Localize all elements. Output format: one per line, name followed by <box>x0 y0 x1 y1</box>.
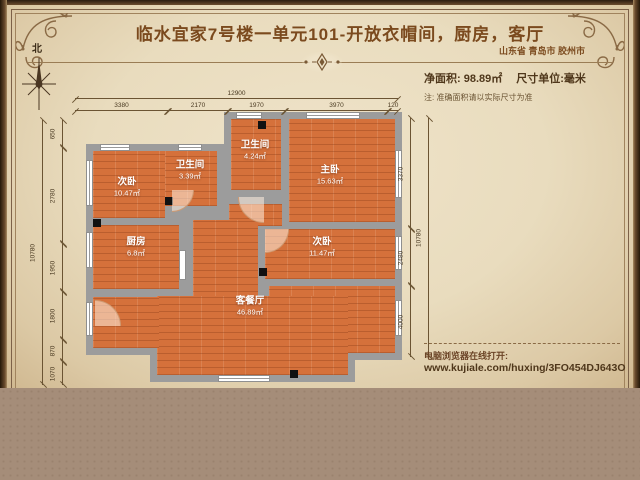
window-icon <box>218 375 270 382</box>
dim-value: 2480 <box>398 250 405 264</box>
dim-value: 870 <box>50 346 57 357</box>
compass-icon <box>20 56 58 112</box>
dim-right-seg: 3370 <box>410 118 411 229</box>
accuracy-note: 注: 准确面积请以实际尺寸为准 <box>424 92 532 103</box>
dim-value: 1950 <box>50 261 57 275</box>
dim-top-seg: 1970 <box>228 110 285 111</box>
dim-value: 2170 <box>191 102 205 109</box>
north-label: 北 <box>32 40 42 55</box>
column-marker <box>290 370 298 378</box>
dim-value: 120 <box>388 102 399 109</box>
dim-value: 1970 <box>249 102 263 109</box>
dim-left-seg: 870 <box>62 340 63 362</box>
dim-right-seg: 4000 <box>410 286 411 357</box>
dim-value: 650 <box>50 129 57 140</box>
dim-right-total: 10780 <box>428 118 429 357</box>
footer-divider <box>424 343 620 344</box>
dim-left-seg: 1950 <box>62 244 63 292</box>
paper-edge-top <box>0 0 640 5</box>
dim-left-seg: 2780 <box>62 148 63 244</box>
net-area-value: 净面积: 98.89㎡ <box>424 73 502 85</box>
dim-value: 3970 <box>329 102 343 109</box>
column-marker <box>258 121 266 129</box>
dim-left-total: 10780 <box>42 120 43 385</box>
room-name: 主卧 <box>317 164 343 176</box>
room-area: 3.39㎡ <box>176 171 205 180</box>
location-label: 山东省 青岛市 胶州市 <box>499 44 585 57</box>
room-name: 卫生间 <box>241 139 270 151</box>
room-name: 次卧 <box>114 176 140 188</box>
room-name: 客餐厅 <box>236 295 265 307</box>
dim-top-total: 12900 <box>75 98 398 99</box>
room-label-kitchen: 厨房 6.8㎡ <box>126 236 145 257</box>
dim-value: 10780 <box>416 228 423 246</box>
net-area-label: 净面积: 98.89㎡尺寸单位:毫米 <box>424 70 586 86</box>
room-name: 厨房 <box>126 236 145 248</box>
dim-top-seg: 120 <box>388 110 398 111</box>
dim-value: 1070 <box>50 366 57 380</box>
window-icon <box>86 232 93 268</box>
room-area: 46.89㎡ <box>236 307 265 316</box>
dim-left-seg: 1070 <box>62 362 63 385</box>
room-label-bath-small: 卫生间 3.39㎡ <box>176 159 205 180</box>
column-marker <box>259 268 267 276</box>
dim-top-seg: 3970 <box>285 110 388 111</box>
paper-edge-left <box>0 0 7 388</box>
dim-value: 12900 <box>227 90 245 97</box>
room-label-bath-main: 卫生间 4.24㎡ <box>241 139 270 160</box>
diamond-ornament-icon <box>302 53 342 71</box>
room-label-bedroom-left: 次卧 10.47㎡ <box>114 176 140 197</box>
room-area: 10.47㎡ <box>114 188 140 197</box>
window-icon <box>236 112 262 119</box>
paper-edge-right <box>633 0 640 388</box>
door-opening <box>179 250 186 280</box>
room-label-living: 客餐厅 46.89㎡ <box>236 295 265 316</box>
dim-value: 10780 <box>30 243 37 261</box>
dim-value: 3370 <box>398 166 405 180</box>
dim-top-seg: 3380 <box>75 110 168 111</box>
room-area: 11.47㎡ <box>309 248 335 257</box>
dim-left-seg: 650 <box>62 120 63 148</box>
room-label-bedroom-right: 次卧 11.47㎡ <box>309 236 335 257</box>
parchment-sheet: 临水宜家7号楼一单元101-开放衣帽间，厨房，客厅 山东省 青岛市 胶州市 净面… <box>0 0 640 388</box>
dim-value: 1800 <box>50 309 57 323</box>
room-area: 6.8㎡ <box>126 248 145 257</box>
dim-top-seg: 2170 <box>168 110 228 111</box>
dim-value: 2780 <box>50 189 57 203</box>
background-band <box>0 388 640 480</box>
unit-label: 尺寸单位:毫米 <box>516 73 586 85</box>
window-icon <box>100 144 130 151</box>
room-area: 15.63㎡ <box>317 176 343 185</box>
dim-left-seg: 1800 <box>62 292 63 340</box>
window-icon <box>86 302 93 336</box>
room-name: 次卧 <box>309 236 335 248</box>
window-icon <box>86 160 93 206</box>
window-icon <box>306 112 360 119</box>
dim-value: 3380 <box>114 102 128 109</box>
floorplan-url[interactable]: www.kujiale.com/huxing/3FO454DJ643O <box>424 362 626 374</box>
window-icon <box>178 144 202 151</box>
room-area: 4.24㎡ <box>241 151 270 160</box>
dim-value: 4000 <box>398 314 405 328</box>
room-name: 卫生间 <box>176 159 205 171</box>
room-label-master: 主卧 15.63㎡ <box>317 164 343 185</box>
page-title: 临水宜家7号楼一单元101-开放衣帽间，厨房，客厅 <box>60 20 620 45</box>
open-in-browser-hint: 电脑浏览器在线打开: <box>424 349 508 362</box>
dim-right-seg: 2480 <box>410 229 411 286</box>
column-marker <box>93 219 101 227</box>
floorplan-page: 临水宜家7号楼一单元101-开放衣帽间，厨房，客厅 山东省 青岛市 胶州市 净面… <box>0 0 640 480</box>
